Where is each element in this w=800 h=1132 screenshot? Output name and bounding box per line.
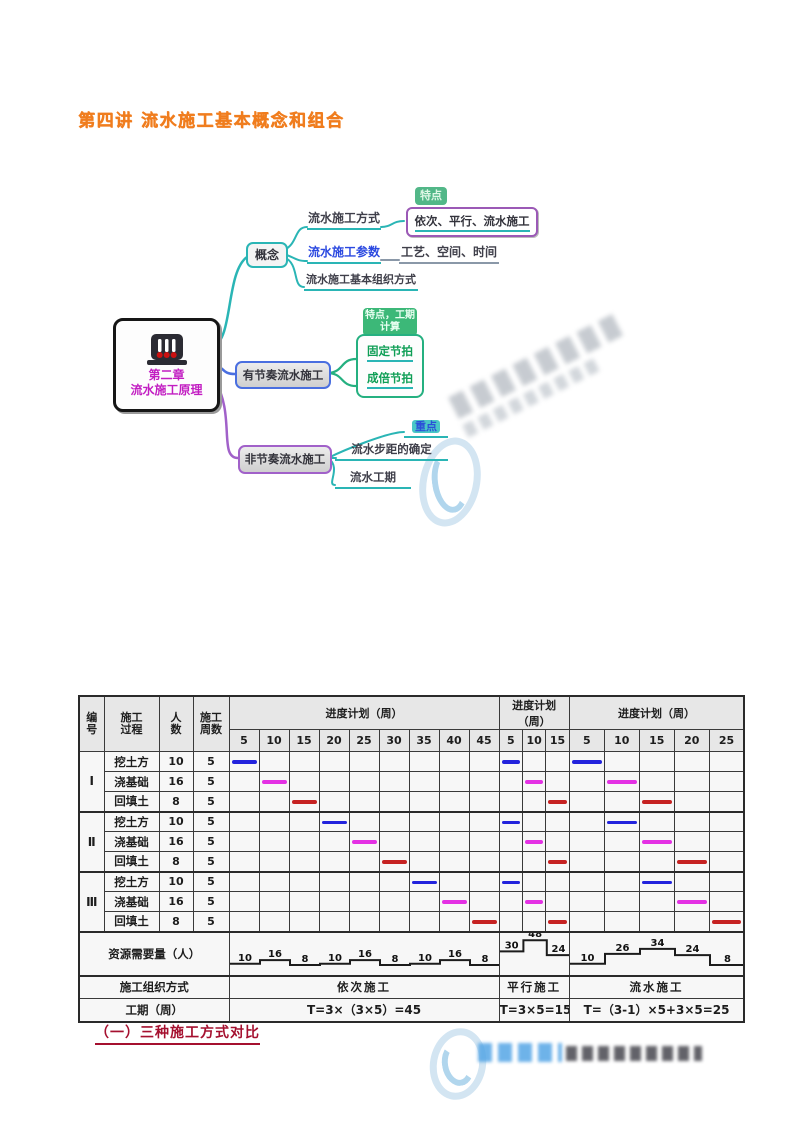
schedule-cell — [349, 792, 379, 812]
tag-characteristics-duration: 特点，工期计算 — [363, 308, 417, 336]
resource-value: 26 — [615, 942, 629, 953]
multiple-rhythm-item: 成倍节拍 — [367, 370, 413, 389]
schedule-cell — [229, 772, 259, 792]
schedule-cell — [522, 772, 545, 792]
table-header: 编 号施工 过程人 数施工 周数进度计划（周）进度计划（周）进度计划（周）510… — [79, 696, 744, 752]
rhythmic-flow-node: 有节奏流水施工 — [235, 361, 331, 389]
gantt-bar — [472, 920, 497, 924]
schedule-cell — [439, 832, 469, 852]
schedule-cell — [569, 892, 604, 912]
resource-label: 资源需要量（人） — [79, 932, 229, 976]
schedule-cell — [569, 812, 604, 832]
schedule-cell — [499, 892, 522, 912]
schedule-cell — [379, 872, 409, 892]
duration-formula: T=（3-1）×5+3×5=25 — [569, 999, 744, 1022]
schedule-cell — [349, 832, 379, 852]
header-weeks: 施工 周数 — [193, 696, 229, 752]
schedule-cell — [469, 852, 499, 872]
gantt-bar — [525, 780, 543, 784]
schedule-cell — [469, 792, 499, 812]
watermark-text-dark — [566, 1046, 702, 1061]
schedule-cell — [639, 812, 674, 832]
method-label: 施工组织方式 — [79, 976, 229, 999]
schedule-cell — [604, 852, 639, 872]
resource-value: 30 — [504, 940, 518, 951]
schedule-cell — [229, 872, 259, 892]
schedule-cell — [709, 752, 744, 772]
flow-methods-value-box: 依次、平行、流水施工 — [406, 207, 538, 237]
schedule-cell — [379, 752, 409, 772]
schedule-cell — [469, 812, 499, 832]
workers-count: 8 — [159, 792, 193, 812]
schedule-cell — [349, 892, 379, 912]
schedule-cell — [499, 852, 522, 872]
schedule-cell — [604, 892, 639, 912]
schedule-cell — [379, 892, 409, 912]
faucet-drip-icon — [145, 333, 189, 367]
schedule-cell — [349, 852, 379, 872]
schedule-cell — [379, 792, 409, 812]
schedule-cell — [259, 772, 289, 792]
schedule-cell — [522, 752, 545, 772]
gantt-bar — [352, 840, 377, 844]
gantt-bar — [677, 900, 707, 904]
schedule-cell — [259, 792, 289, 812]
duration-formula: T=3×5=15 — [499, 999, 569, 1022]
schedule-cell — [439, 892, 469, 912]
weeks-count: 5 — [193, 892, 229, 912]
schedule-cell — [499, 812, 522, 832]
page-title: 第四讲 流水施工基本概念和组合 — [78, 106, 344, 131]
schedule-cell — [522, 812, 545, 832]
week-tick: 15 — [639, 730, 674, 752]
workers-count: 16 — [159, 772, 193, 792]
gantt-bar — [322, 821, 347, 825]
basic-organization-label: 流水施工基本组织方式 — [304, 271, 418, 291]
process-name: 浇基础 — [104, 892, 159, 912]
schedule-cell — [319, 752, 349, 772]
gantt-bar — [548, 860, 566, 864]
schedule-cell — [439, 872, 469, 892]
gantt-bar — [262, 780, 287, 784]
weeks-count: 5 — [193, 832, 229, 852]
resource-step-chart: 304824 — [500, 933, 570, 975]
schedule-cell — [546, 752, 569, 772]
group-label: Ⅱ — [79, 812, 104, 872]
schedule-cell — [409, 892, 439, 912]
header-process: 施工 过程 — [104, 696, 159, 752]
schedule-cell — [674, 912, 709, 932]
table-body: Ⅰ挖土方105浇基础165回填土85Ⅱ挖土方105浇基础165回填土85Ⅲ挖土方… — [79, 752, 744, 1022]
schedule-cell — [469, 872, 499, 892]
schedule-cell — [546, 912, 569, 932]
schedule-cell — [439, 812, 469, 832]
schedule-cell — [604, 872, 639, 892]
schedule-cell — [349, 872, 379, 892]
schedule-cell — [546, 872, 569, 892]
non-rhythmic-flow-node: 非节奏流水施工 — [238, 445, 332, 474]
schedule-cell — [546, 792, 569, 812]
flow-params-label: 流水施工参数 — [307, 243, 381, 264]
flow-methods-label: 流水施工方式 — [307, 209, 381, 230]
gantt-bar — [502, 760, 520, 764]
gantt-bar — [412, 881, 437, 885]
fixed-rhythm-item: 固定节拍 — [367, 343, 413, 362]
schedule-cell — [674, 812, 709, 832]
schedule-cell — [379, 772, 409, 792]
schedule-cell — [319, 912, 349, 932]
schedule-cell — [569, 832, 604, 852]
schedule-cell — [379, 852, 409, 872]
schedule-cell — [674, 852, 709, 872]
weeks-count: 5 — [193, 872, 229, 892]
schedule-cell — [289, 752, 319, 772]
gantt-bar — [642, 840, 672, 844]
schedule-cell — [674, 792, 709, 812]
schedule-comparison-table: 编 号施工 过程人 数施工 周数进度计划（周）进度计划（周）进度计划（周）510… — [78, 695, 745, 1023]
weeks-count: 5 — [193, 812, 229, 832]
process-name: 浇基础 — [104, 772, 159, 792]
schedule-cell — [319, 872, 349, 892]
mindmap-root-node: 第二章 流水施工原理 — [113, 318, 220, 412]
schedule-cell — [604, 772, 639, 792]
schedule-cell — [569, 912, 604, 932]
schedule-cell — [259, 812, 289, 832]
schedule-cell — [522, 792, 545, 812]
watermark-text-blue — [478, 1043, 562, 1062]
schedule-cell — [379, 912, 409, 932]
schedule-cell — [499, 832, 522, 852]
schedule-cell — [469, 912, 499, 932]
schedule-cell — [709, 912, 744, 932]
week-tick: 30 — [379, 730, 409, 752]
schedule-cell — [349, 752, 379, 772]
schedule-cell — [639, 892, 674, 912]
method-name: 平行施工 — [499, 976, 569, 999]
resource-value: 16 — [448, 949, 462, 960]
schedule-cell — [546, 852, 569, 872]
schedule-cell — [499, 752, 522, 772]
resource-value: 10 — [328, 952, 342, 963]
schedule-cell — [409, 752, 439, 772]
workers-count: 16 — [159, 892, 193, 912]
week-tick: 10 — [522, 730, 545, 752]
schedule-cell — [546, 832, 569, 852]
process-name: 回填土 — [104, 852, 159, 872]
workers-count: 16 — [159, 832, 193, 852]
weeks-count: 5 — [193, 772, 229, 792]
tag-characteristics: 特点 — [415, 187, 447, 205]
week-tick: 5 — [499, 730, 522, 752]
workers-count: 10 — [159, 872, 193, 892]
schedule-cell — [319, 852, 349, 872]
schedule-cell — [259, 872, 289, 892]
watermark-diagonal-text — [448, 311, 638, 437]
week-tick: 5 — [229, 730, 259, 752]
resource-chart-cell: 304824 — [499, 932, 569, 976]
method-name: 流水施工 — [569, 976, 744, 999]
schedule-cell — [319, 772, 349, 792]
schedule-cell — [569, 852, 604, 872]
schedule-cell — [259, 852, 289, 872]
group-label: Ⅲ — [79, 872, 104, 932]
gantt-bar — [292, 800, 317, 804]
workers-count: 8 — [159, 852, 193, 872]
gantt-bar — [548, 800, 566, 804]
swoosh-ellipse-logo — [424, 1024, 492, 1105]
schedule-cell — [409, 872, 439, 892]
week-tick: 5 — [569, 730, 604, 752]
week-tick: 40 — [439, 730, 469, 752]
resource-value: 16 — [358, 949, 372, 960]
process-name: 回填土 — [104, 912, 159, 932]
schedule-cell — [289, 792, 319, 812]
resource-step-chart: 101681016810168 — [230, 933, 500, 975]
schedule-cell — [289, 912, 319, 932]
method-name: 依次施工 — [229, 976, 499, 999]
schedule-cell — [349, 772, 379, 792]
schedule-cell — [639, 752, 674, 772]
group-label: Ⅰ — [79, 752, 104, 812]
schedule-cell — [379, 832, 409, 852]
schedule-cell — [349, 912, 379, 932]
week-tick: 10 — [604, 730, 639, 752]
document-page: 第四讲 流水施工基本概念和组合 — [0, 0, 800, 1132]
schedule-cell — [604, 912, 639, 932]
schedule-cell — [499, 872, 522, 892]
rhythmic-children-box: 固定节拍 成倍节拍 — [356, 334, 424, 398]
header-schedule: 进度计划（周） — [569, 696, 744, 730]
week-tick: 20 — [319, 730, 349, 752]
schedule-cell — [319, 832, 349, 852]
schedule-cell — [289, 832, 319, 852]
schedule-cell — [546, 772, 569, 792]
resource-value: 24 — [685, 944, 699, 955]
schedule-cell — [546, 812, 569, 832]
resource-value: 8 — [391, 954, 398, 965]
workers-count: 10 — [159, 752, 193, 772]
schedule-cell — [259, 832, 289, 852]
schedule-cell — [639, 852, 674, 872]
workers-count: 8 — [159, 912, 193, 932]
schedule-cell — [546, 892, 569, 912]
gantt-bar — [607, 821, 637, 825]
flow-methods-value: 依次、平行、流水施工 — [415, 213, 530, 232]
schedule-cell — [349, 812, 379, 832]
gantt-bar — [525, 900, 543, 904]
gantt-bar — [572, 760, 602, 764]
resource-step-chart: 102634248 — [570, 933, 745, 975]
process-name: 挖土方 — [104, 752, 159, 772]
duration-formula: T=3×（3×5）=45 — [229, 999, 499, 1022]
resource-value: 8 — [301, 954, 308, 965]
process-name: 挖土方 — [104, 812, 159, 832]
resource-chart-cell: 102634248 — [569, 932, 744, 976]
schedule-cell — [409, 812, 439, 832]
resource-value: 48 — [528, 933, 542, 940]
schedule-cell — [229, 892, 259, 912]
schedule-cell — [229, 792, 259, 812]
schedule-cell — [522, 852, 545, 872]
weeks-count: 5 — [193, 752, 229, 772]
week-tick: 15 — [546, 730, 569, 752]
resource-value: 10 — [580, 952, 594, 963]
tag-key-point-wrap: 重点 — [404, 415, 448, 438]
gantt-bar — [232, 760, 257, 764]
resource-value: 34 — [650, 937, 664, 948]
schedule-cell — [522, 872, 545, 892]
resource-value: 10 — [418, 952, 432, 963]
gantt-bar — [642, 800, 672, 804]
gantt-bar — [442, 900, 467, 904]
schedule-cell — [499, 792, 522, 812]
schedule-cell — [569, 872, 604, 892]
header-schedule: 进度计划（周） — [499, 696, 569, 730]
schedule-cell — [522, 892, 545, 912]
schedule-cell — [639, 832, 674, 852]
schedule-cell — [469, 832, 499, 852]
schedule-cell — [522, 912, 545, 932]
week-tick: 35 — [409, 730, 439, 752]
schedule-cell — [604, 832, 639, 852]
schedule-cell — [639, 792, 674, 812]
schedule-cell — [439, 852, 469, 872]
schedule-cell — [229, 852, 259, 872]
schedule-cell — [319, 812, 349, 832]
week-tick: 10 — [259, 730, 289, 752]
process-name: 回填土 — [104, 792, 159, 812]
flow-duration-item: 流水工期 — [335, 469, 411, 489]
gantt-bar — [642, 881, 672, 885]
schedule-cell — [469, 752, 499, 772]
tag-key-point: 重点 — [412, 420, 440, 433]
schedule-cell — [469, 892, 499, 912]
schedule-cell — [709, 772, 744, 792]
schedule-cell — [569, 772, 604, 792]
header-id: 编 号 — [79, 696, 104, 752]
schedule-cell — [709, 832, 744, 852]
schedule-cell — [439, 772, 469, 792]
schedule-cell — [639, 872, 674, 892]
schedule-cell — [709, 872, 744, 892]
resource-chart-cell: 101681016810168 — [229, 932, 499, 976]
schedule-cell — [289, 872, 319, 892]
schedule-cell — [409, 792, 439, 812]
schedule-cell — [289, 892, 319, 912]
schedule-cell — [604, 752, 639, 772]
schedule-cell — [259, 892, 289, 912]
week-tick: 20 — [674, 730, 709, 752]
schedule-cell — [229, 912, 259, 932]
schedule-cell — [289, 772, 319, 792]
weeks-count: 5 — [193, 912, 229, 932]
header-schedule: 进度计划（周） — [229, 696, 499, 730]
schedule-cell — [604, 792, 639, 812]
schedule-cell — [674, 772, 709, 792]
concept-node: 概念 — [246, 242, 288, 268]
resource-value: 8 — [481, 954, 488, 965]
gantt-bar — [525, 840, 543, 844]
schedule-cell — [709, 812, 744, 832]
flow-params-value: 工艺、空间、时间 — [399, 243, 499, 264]
schedule-cell — [409, 852, 439, 872]
root-chapter: 第二章 — [148, 368, 184, 382]
weeks-count: 5 — [193, 852, 229, 872]
schedule-cell — [289, 852, 319, 872]
gantt-bar — [712, 920, 742, 924]
schedule-cell — [379, 812, 409, 832]
gantt-bar — [548, 920, 566, 924]
schedule-cell — [674, 832, 709, 852]
process-name: 挖土方 — [104, 872, 159, 892]
workers-count: 10 — [159, 812, 193, 832]
gantt-bar — [502, 821, 520, 825]
schedule-cell — [499, 772, 522, 792]
schedule-cell — [319, 892, 349, 912]
schedule-cell — [522, 832, 545, 852]
schedule-cell — [229, 752, 259, 772]
week-tick: 25 — [349, 730, 379, 752]
schedule-cell — [439, 792, 469, 812]
resource-value: 10 — [238, 952, 252, 963]
schedule-cell — [499, 912, 522, 932]
schedule-cell — [229, 812, 259, 832]
duration-label: 工期（周） — [79, 999, 229, 1022]
schedule-cell — [289, 812, 319, 832]
resource-value: 16 — [268, 949, 282, 960]
schedule-cell — [639, 772, 674, 792]
week-tick: 45 — [469, 730, 499, 752]
gantt-bar — [607, 780, 637, 784]
schedule-cell — [674, 892, 709, 912]
resource-value: 8 — [724, 954, 731, 965]
schedule-cell — [674, 752, 709, 772]
schedule-cell — [639, 912, 674, 932]
schedule-cell — [469, 772, 499, 792]
schedule-cell — [229, 832, 259, 852]
schedule-cell — [674, 872, 709, 892]
schedule-cell — [439, 752, 469, 772]
root-title: 流水施工原理 — [130, 383, 202, 397]
schedule-cell — [259, 912, 289, 932]
schedule-cell — [319, 792, 349, 812]
schedule-cell — [409, 772, 439, 792]
gantt-bar — [677, 860, 707, 864]
resource-value: 24 — [551, 944, 565, 955]
schedule-cell — [409, 832, 439, 852]
header-workers: 人 数 — [159, 696, 193, 752]
schedule-cell — [709, 852, 744, 872]
gantt-bar — [382, 860, 407, 864]
flow-step-item: 流水步距的确定 — [335, 441, 448, 461]
schedule-cell — [439, 912, 469, 932]
week-tick: 15 — [289, 730, 319, 752]
schedule-cell — [709, 792, 744, 812]
section-caption: （一）三种施工方式对比 — [95, 1022, 260, 1045]
week-tick: 25 — [709, 730, 744, 752]
gantt-bar — [502, 881, 520, 885]
schedule-cell — [259, 752, 289, 772]
schedule-cell — [709, 892, 744, 912]
process-name: 浇基础 — [104, 832, 159, 852]
schedule-cell — [409, 912, 439, 932]
schedule-cell — [569, 752, 604, 772]
schedule-cell — [604, 812, 639, 832]
weeks-count: 5 — [193, 792, 229, 812]
schedule-cell — [569, 792, 604, 812]
